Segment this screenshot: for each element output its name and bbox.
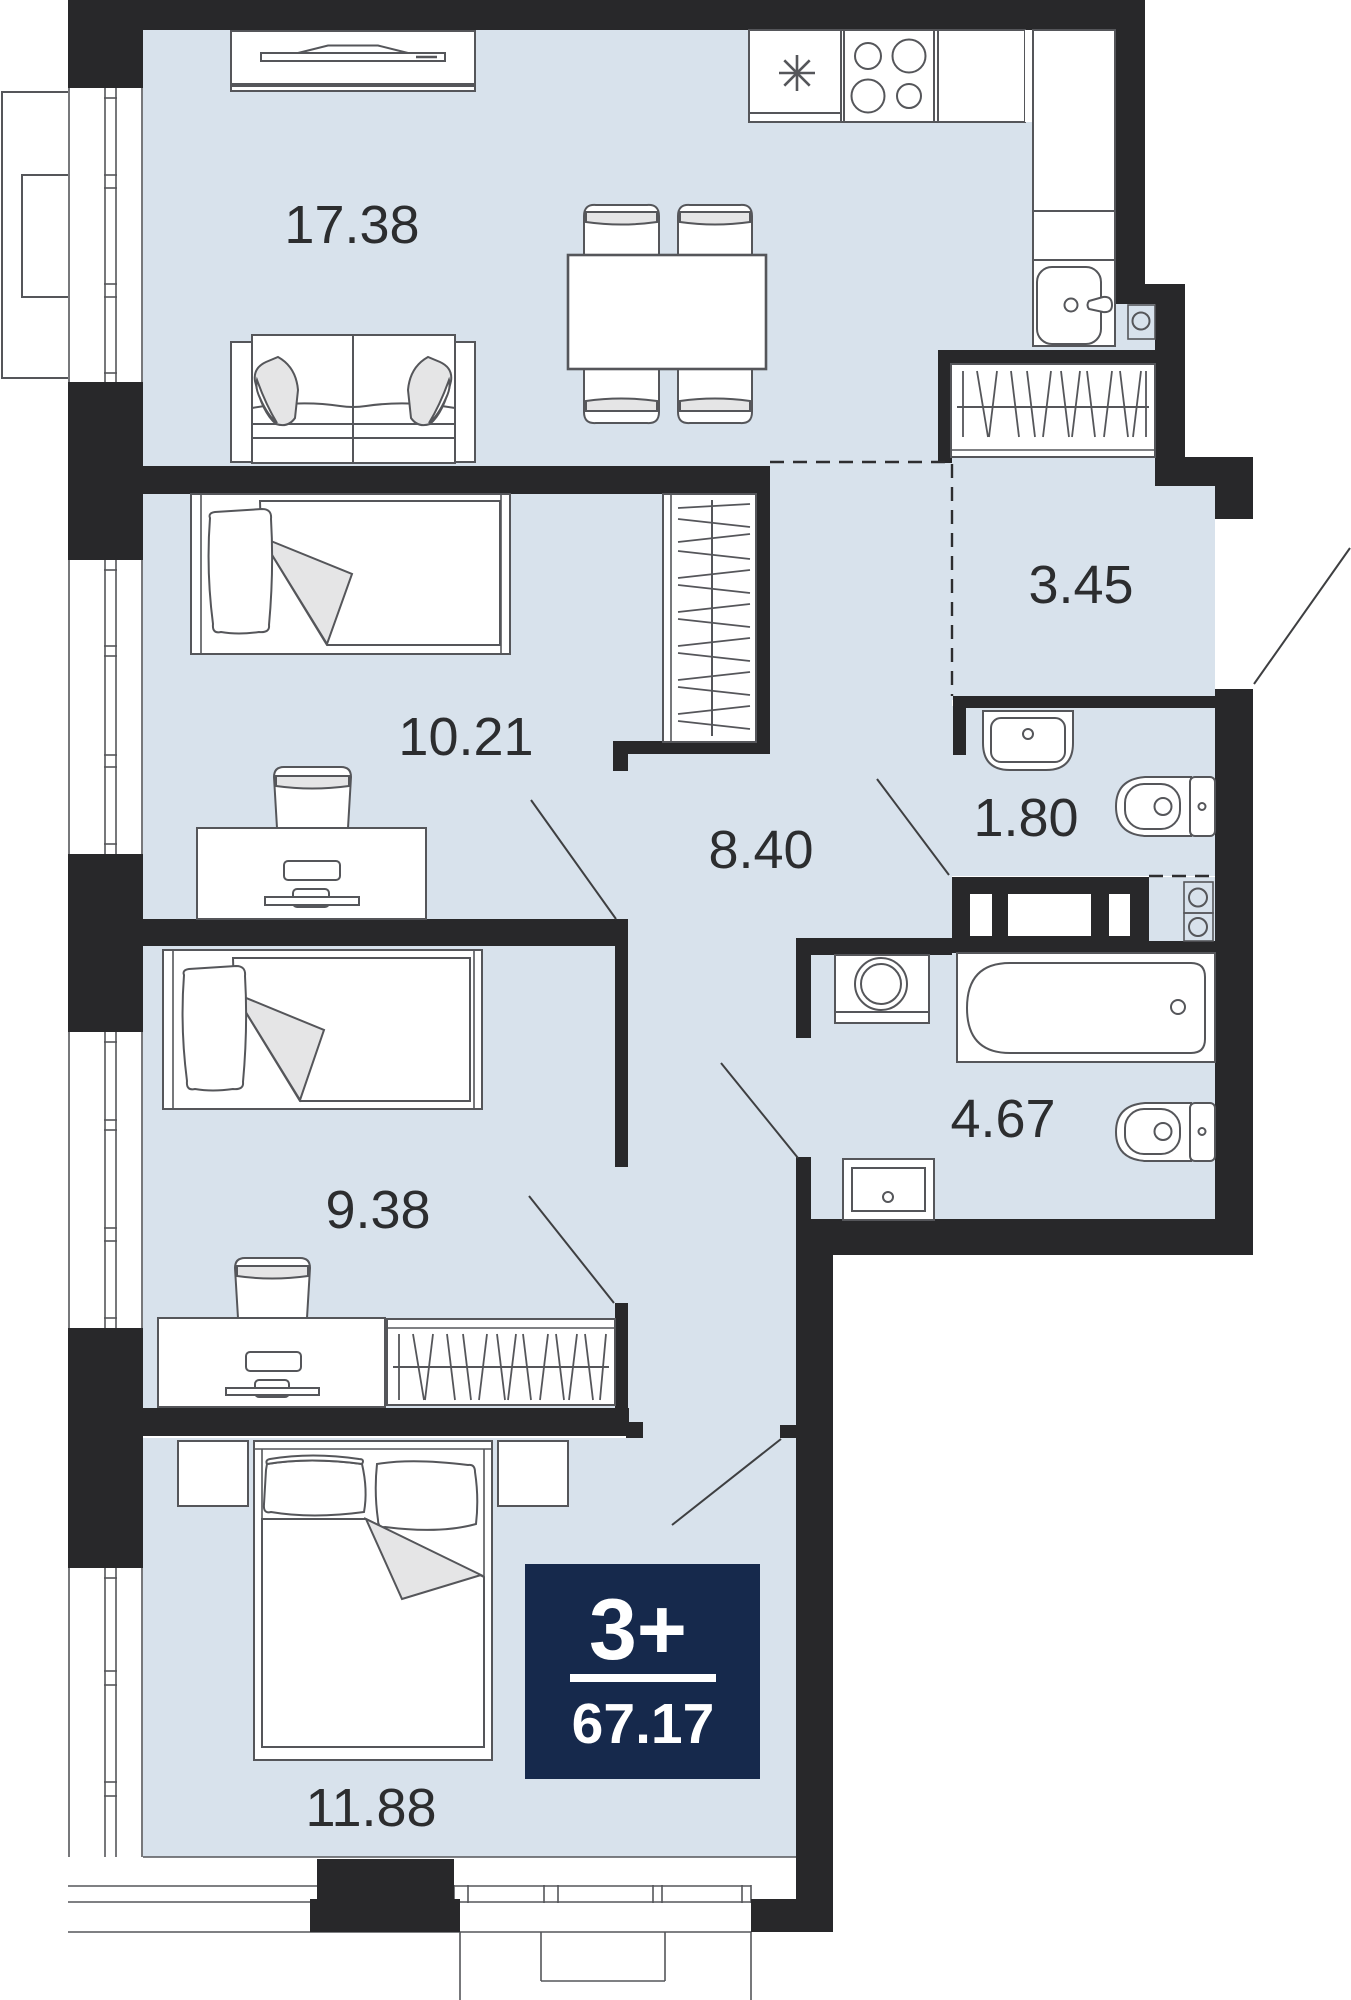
svg-text:3.45: 3.45 — [1028, 555, 1133, 615]
svg-text:11.88: 11.88 — [305, 1778, 436, 1838]
svg-text:8.40: 8.40 — [708, 820, 813, 880]
svg-text:10.21: 10.21 — [398, 707, 533, 767]
svg-text:3+: 3+ — [589, 1582, 687, 1678]
svg-text:67.17: 67.17 — [572, 1692, 715, 1756]
svg-text:4.67: 4.67 — [950, 1089, 1055, 1149]
svg-text:1.80: 1.80 — [973, 788, 1078, 848]
svg-text:17.38: 17.38 — [284, 195, 419, 255]
svg-text:9.38: 9.38 — [325, 1180, 430, 1240]
